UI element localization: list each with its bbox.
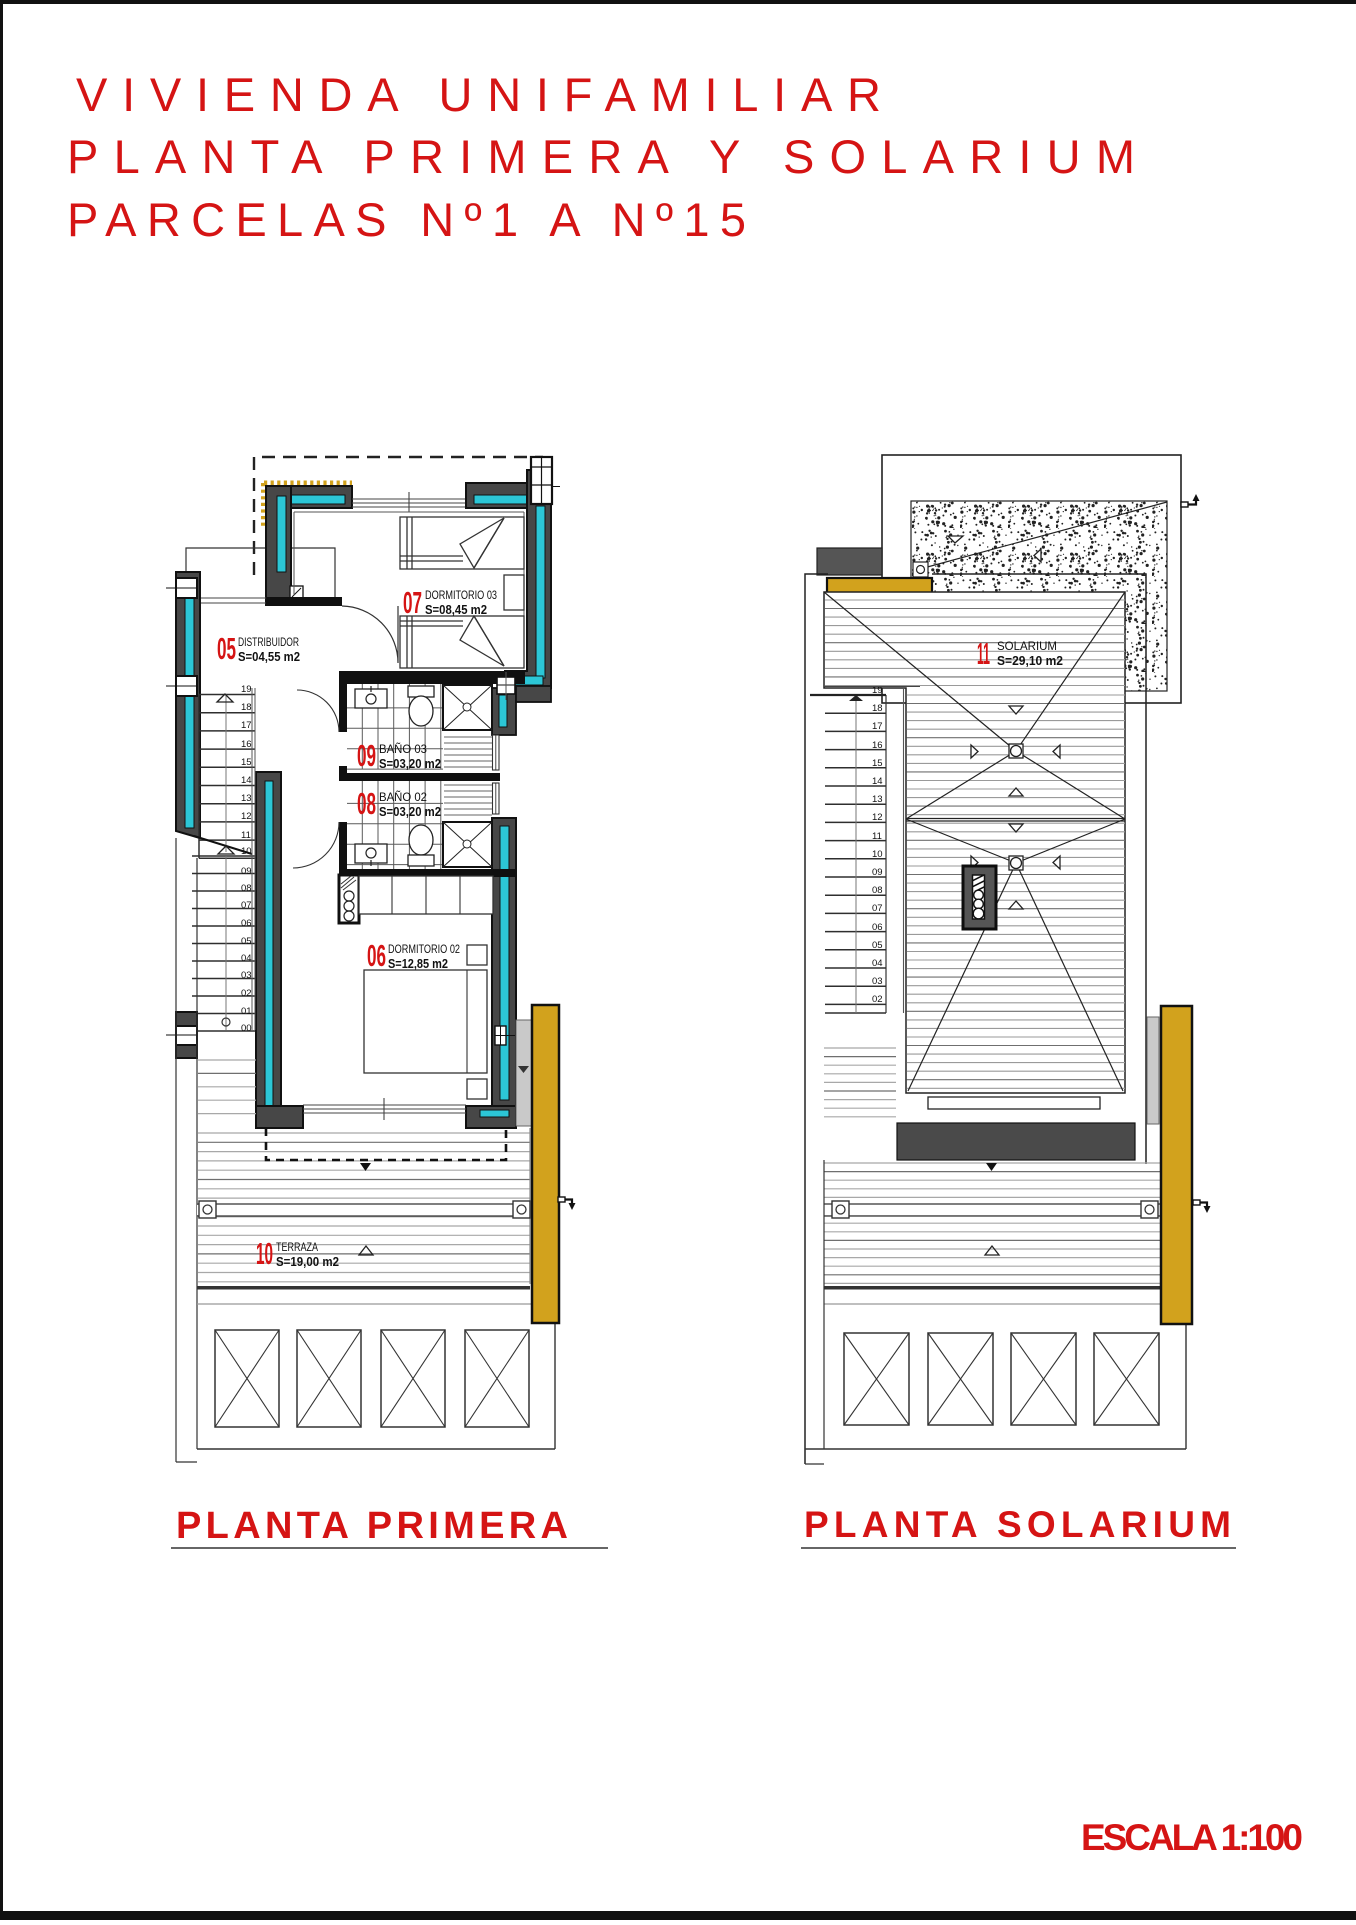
svg-text:11: 11	[241, 830, 251, 841]
svg-text:10: 10	[872, 849, 883, 860]
svg-text:S=29,10 m2: S=29,10 m2	[997, 654, 1063, 668]
svg-text:06: 06	[367, 938, 386, 973]
svg-text:16: 16	[872, 740, 883, 751]
svg-text:08: 08	[357, 786, 376, 821]
svg-text:15: 15	[241, 757, 252, 768]
svg-text:13: 13	[241, 793, 252, 804]
svg-text:BAÑO 03: BAÑO 03	[379, 742, 427, 756]
svg-text:PLANTA PRIMERA Y SOLARIUM: PLANTA PRIMERA Y SOLARIUM	[67, 130, 1144, 183]
svg-text:DORMITORIO 02: DORMITORIO 02	[388, 942, 460, 956]
svg-text:17: 17	[872, 721, 883, 732]
svg-text:13: 13	[872, 794, 883, 805]
svg-text:S=19,00 m2: S=19,00 m2	[276, 1255, 339, 1269]
svg-text:12: 12	[241, 811, 252, 822]
svg-text:19: 19	[241, 684, 252, 695]
svg-text:05: 05	[872, 940, 883, 951]
svg-text:00: 00	[241, 1023, 252, 1034]
svg-text:10: 10	[256, 1236, 273, 1271]
svg-text:12: 12	[872, 812, 883, 823]
svg-text:09: 09	[241, 866, 252, 877]
svg-text:06: 06	[241, 918, 252, 929]
svg-text:S=03,20 m2: S=03,20 m2	[379, 757, 441, 771]
svg-text:S=03,20 m2: S=03,20 m2	[379, 805, 441, 819]
svg-text:17: 17	[241, 720, 252, 731]
svg-text:07: 07	[872, 903, 883, 914]
svg-text:01: 01	[241, 1006, 252, 1017]
svg-text:04: 04	[872, 958, 883, 969]
svg-text:09: 09	[872, 867, 883, 878]
svg-text:S=04,55 m2: S=04,55 m2	[238, 650, 300, 664]
svg-text:06: 06	[872, 922, 883, 933]
svg-text:05: 05	[217, 631, 236, 666]
svg-text:TERRAZA: TERRAZA	[276, 1240, 318, 1254]
svg-text:ESCALA 1:100: ESCALA 1:100	[1081, 1817, 1303, 1858]
svg-text:PARCELAS Nº1 A Nº15: PARCELAS Nº1 A Nº15	[67, 193, 755, 246]
svg-text:14: 14	[872, 776, 883, 787]
svg-text:SOLARIUM: SOLARIUM	[997, 639, 1057, 653]
svg-text:03: 03	[872, 976, 883, 987]
svg-text:11: 11	[872, 831, 882, 842]
svg-text:S=12,85 m2: S=12,85 m2	[388, 957, 448, 971]
svg-text:08: 08	[241, 883, 252, 894]
svg-text:BAÑO 02: BAÑO 02	[379, 790, 427, 804]
svg-text:02: 02	[241, 988, 252, 999]
svg-text:07: 07	[241, 900, 252, 911]
svg-text:18: 18	[241, 702, 252, 713]
svg-text:14: 14	[241, 775, 252, 786]
svg-text:15: 15	[872, 758, 883, 769]
svg-text:11: 11	[977, 636, 990, 671]
svg-text:03: 03	[241, 970, 252, 981]
svg-text:10: 10	[241, 846, 252, 857]
svg-text:16: 16	[241, 739, 252, 750]
svg-text:S=08,45 m2: S=08,45 m2	[425, 603, 487, 617]
svg-text:05: 05	[241, 936, 252, 947]
svg-text:02: 02	[872, 994, 883, 1005]
svg-text:DORMITORIO 03: DORMITORIO 03	[425, 588, 497, 602]
svg-text:18: 18	[872, 703, 883, 714]
svg-text:PLANTA PRIMERA: PLANTA PRIMERA	[176, 1505, 568, 1547]
svg-text:07: 07	[403, 585, 422, 620]
svg-text:DISTRIBUIDOR: DISTRIBUIDOR	[238, 635, 299, 649]
svg-text:08: 08	[872, 885, 883, 896]
svg-text:09: 09	[357, 738, 376, 773]
svg-text:04: 04	[241, 953, 252, 964]
